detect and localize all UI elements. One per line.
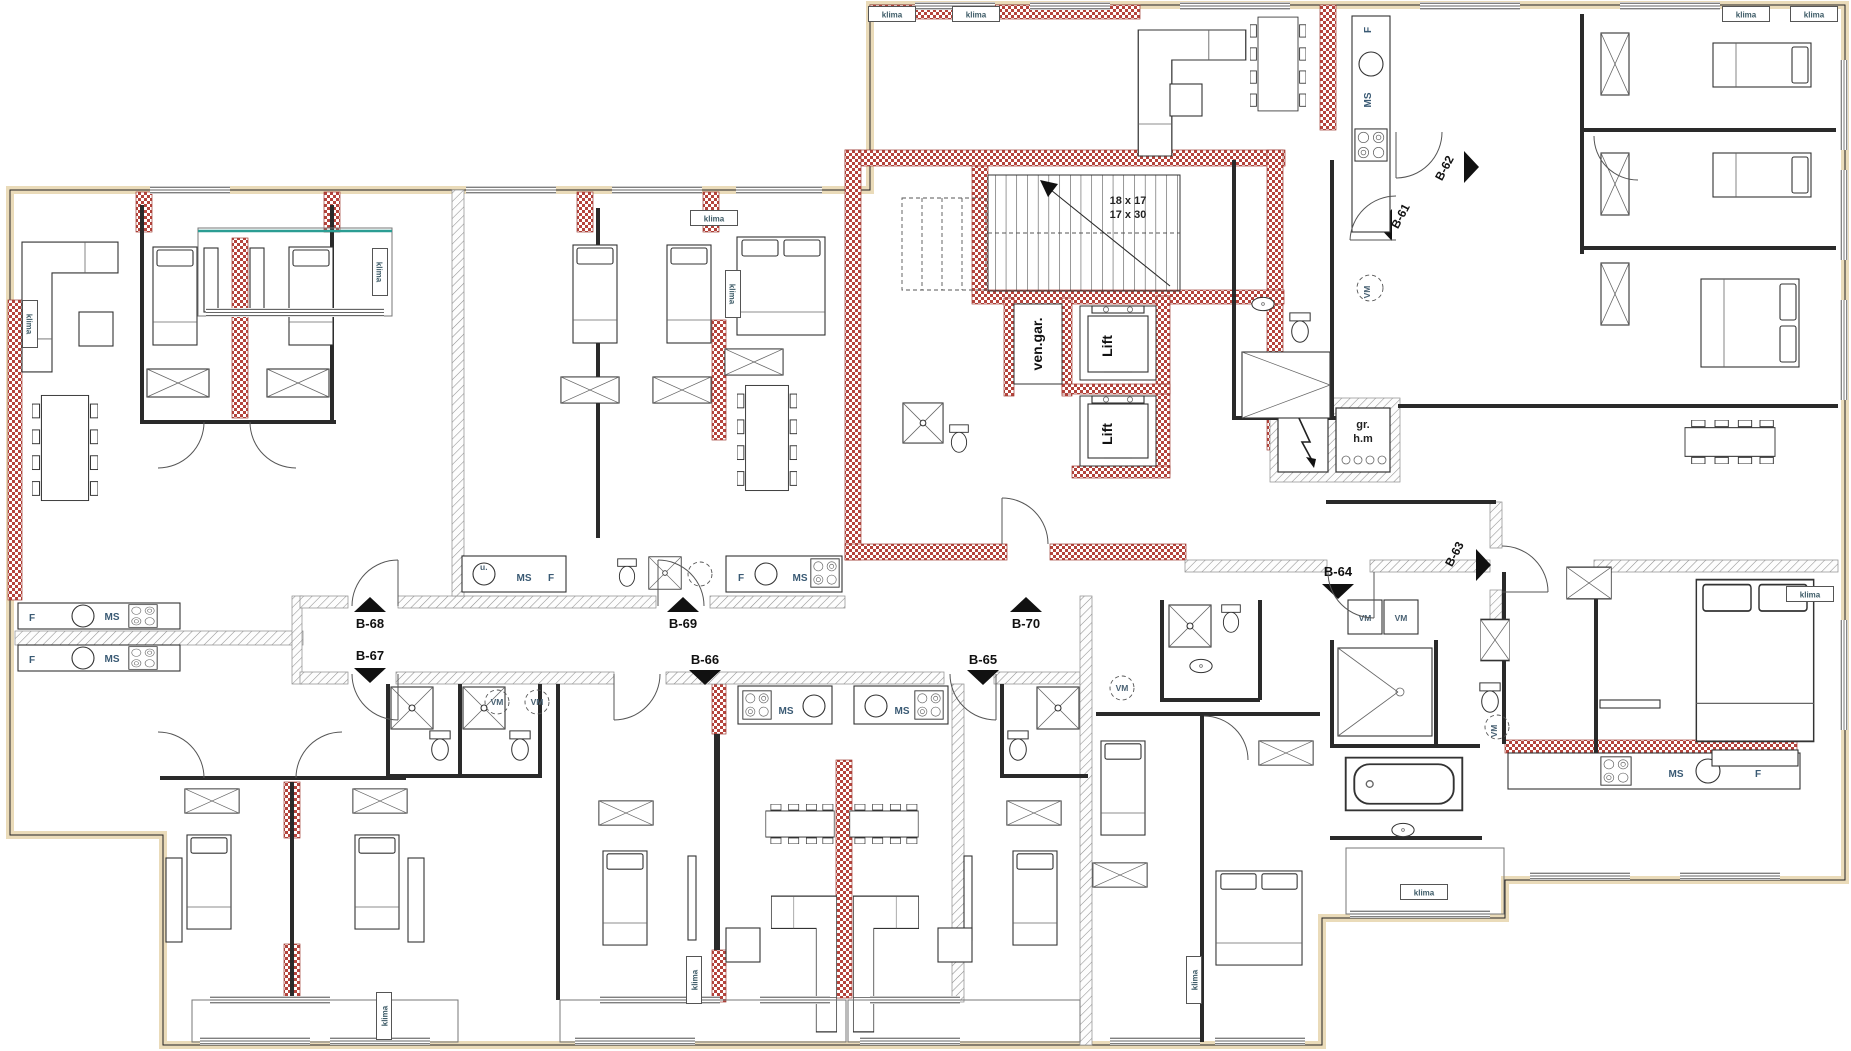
bed-icon [1101,741,1145,835]
window [1840,620,1848,730]
fridge-label: F [1363,27,1374,33]
lift-2-label: Lift [1099,423,1115,445]
unit-label-b65: B-65 [969,652,997,667]
wall-segment [386,684,390,776]
wall-segment [845,544,1007,560]
fridge-label: F [29,613,35,624]
floor-plan-page: klima [0,0,1851,1051]
wall-segment [1398,404,1838,408]
sink-icon [72,605,94,627]
wall-segment [458,684,462,776]
entrance-arrow-b70 [1010,597,1042,612]
wall-segment [292,596,302,684]
wall-segment [1160,600,1164,700]
wall-segment [1004,298,1014,396]
washing-machine-label: VM [1362,286,1372,299]
klima-unit-icon [726,271,741,318]
unit-label-b67: B-67 [356,648,384,663]
toilet-icon [1290,313,1310,342]
bed-icon [1713,153,1811,197]
window [1215,1037,1305,1045]
bed-icon [667,245,711,343]
shower-icon [1037,687,1079,729]
wall-segment [1232,160,1236,420]
bed-icon [1013,851,1057,945]
door-arc [158,732,204,778]
wall-segment [1434,640,1438,748]
wardrobe-icon [353,789,407,813]
dishwasher-label: MS [105,654,120,665]
wall-segment [712,684,726,734]
wall-segment [1160,698,1260,702]
sink-icon [803,695,825,717]
klima-unit-icon [377,993,392,1040]
window [575,1037,695,1045]
bed-icon [355,835,399,929]
window [860,1037,960,1045]
desk [250,248,264,312]
klima-unit-icon [691,211,738,226]
window [1680,872,1780,880]
dishwasher-label: MS [779,706,794,717]
window [466,186,556,194]
wardrobe-icon [1480,619,1509,660]
wardrobe-icon [725,349,783,375]
dining-table-icon [766,804,834,844]
wardrobe-icon [1259,741,1313,765]
bed-icon [289,247,333,345]
fridge-label: F [1755,769,1761,780]
tv-panel [964,856,972,940]
window [1180,2,1290,10]
stove-icon [915,691,943,719]
double-bed-icon [1216,871,1302,965]
meter-room-label-1: gr. [1356,419,1369,431]
wall-segment [1326,500,1496,504]
wardrobe-icon [185,789,239,813]
entrance-arrow-b69 [667,597,699,612]
wall-segment [1080,596,1092,1045]
fridge-label: F [29,655,35,666]
lift-machinery-2 [1092,396,1144,403]
toilet-icon [950,425,969,453]
wall-segment [1062,298,1072,396]
wardrobe-icon [267,369,329,397]
shower-icon [391,687,433,729]
column [577,192,593,232]
fridge-label: F [548,573,554,584]
wall-segment [845,150,861,560]
door-arc [158,422,204,468]
wardrobe-icon [1567,567,1612,599]
wall-segment [1330,640,1334,748]
tv-panel [688,856,696,940]
wall-segment [1584,246,1836,250]
basin-icon [1190,659,1212,672]
shower-icon [463,687,505,729]
toilet-icon [430,731,450,760]
window [1030,2,1110,10]
window [1620,2,1720,10]
stair-core: 18 x 17 17 x 30 [902,175,1180,291]
sofa-icon [771,896,836,1032]
door-arc [614,674,660,720]
toilet-icon [1008,731,1028,760]
balcony [1346,848,1504,914]
wall-segment [1000,774,1088,778]
corridor-wall [396,672,614,684]
wall-segment [836,760,852,998]
wall-segment [1580,14,1584,254]
door-arc [1204,716,1248,760]
wall-segment [972,290,1284,304]
sink-icon [72,647,94,669]
coffee-table [938,928,972,962]
window [150,186,230,194]
lift-car-1 [1088,316,1148,372]
corridor-wall [300,672,348,684]
structural-walls [8,5,1797,1002]
dining-table-icon [1685,420,1775,464]
corridor-wall [994,672,1080,684]
toilet-icon [618,559,637,587]
window [736,186,822,194]
dishwasher-label: MS [1669,769,1684,780]
bed-bench [1712,750,1798,766]
coffee-table [79,312,113,346]
walk-in-shower [1338,648,1432,736]
wardrobe-icon [1601,33,1629,95]
wall-segment [140,205,144,423]
bed-icon [153,247,197,345]
desk [408,858,424,942]
window [1840,300,1848,400]
klima-unit-icon [1723,7,1770,22]
corridor-wall [300,596,348,608]
stove-icon [1355,129,1387,161]
bed-icon [573,245,617,343]
klima-unit-icon [687,957,702,1004]
klima-unit-icon [869,7,916,22]
shower-icon [903,403,943,443]
unit-label-b70: B-70 [1012,616,1040,631]
stove-icon [811,559,839,587]
washing-machine-label: VM [1395,613,1408,623]
dishwasher-label: MS [517,573,532,584]
sink-icon [865,695,887,717]
unit-label-b68: B-68 [356,616,384,631]
door-arc [250,422,296,468]
entrance-arrow-b63 [1476,549,1491,581]
dining-table-icon [850,804,918,844]
wall-segment [1584,128,1836,132]
corridor-wall [1370,560,1490,572]
entrance-arrow-b67 [354,668,386,683]
bed-icon [187,835,231,929]
klima-unit-icon [373,249,388,296]
tv-panel [1600,700,1660,708]
washing-machine-label: VM [1116,683,1129,693]
sofa-icon [853,896,918,1032]
wardrobe-icon [1007,801,1061,825]
window [210,996,330,1004]
window [1840,170,1848,260]
wardrobe-icon [147,369,209,397]
klima-unit-icon [1787,587,1834,602]
wall-segment [845,150,1285,166]
desk [204,248,218,312]
window [612,186,702,194]
bed-icon [603,851,647,945]
meter-room-label-2: h.m [1353,433,1373,445]
door-arc [352,560,398,606]
stair-dimension-2: 17 x 30 [1110,209,1147,221]
wardrobe-icon [1601,153,1629,215]
wall-segment [1062,384,1170,394]
floor-plan-svg: klima [0,0,1851,1051]
unit-label-b66: B-66 [691,652,719,667]
dining-table-icon [1250,17,1306,111]
dishwasher-label: MS [1363,92,1374,107]
dishwasher-label: MS [105,612,120,623]
wall-segment [1320,5,1336,130]
stove-icon [1601,757,1631,785]
corridor-wall [398,596,656,608]
window [760,996,830,1004]
walk-in-shower [1242,352,1330,418]
sink-icon [1359,52,1383,76]
dishwasher-label: MS [895,706,910,717]
klima-unit-icon [1187,957,1202,1004]
fridge-label: F [738,573,744,584]
wall-segment [452,190,464,596]
dining-table-icon [32,395,98,500]
double-bed-icon [1696,580,1813,742]
wall-segment [1330,160,1334,420]
entrance-arrow-b62 [1464,151,1479,183]
klima-unit-icon [953,7,1000,22]
sink-icon [755,563,777,585]
window [1350,910,1490,918]
toilet-icon [1480,683,1500,712]
corridor-wall [1185,560,1327,572]
window [200,1037,310,1045]
klima-unit-icon [1791,7,1838,22]
wall-segment [1072,466,1170,478]
vent-shaft-label: ven.gar. [1029,318,1045,371]
lift-machinery-1 [1092,306,1144,313]
door-arc [296,732,342,778]
stove-icon [129,605,157,628]
wardrobe-icon [599,801,653,825]
washing-machine-label: VM [491,697,504,707]
wall-segment [458,774,542,778]
shower-icon [649,557,681,589]
door-arc [1002,498,1048,544]
window [206,308,384,317]
sink-u-label: u. [480,562,488,572]
wall-segment [1594,572,1598,762]
entrance-arrow-b68 [354,597,386,612]
wall-segment [160,776,406,780]
balcony [560,1000,846,1042]
unit-label-b62: B-62 [1432,153,1457,183]
wall-segment [1594,560,1838,572]
lift-1-label: Lift [1099,335,1115,357]
wall-segment [1330,744,1480,748]
toilet-icon [1222,605,1241,633]
door-arc [1502,546,1548,592]
stair-dimension-1: 18 x 17 [1110,195,1147,207]
stove-icon [743,691,771,719]
basin-icon [1392,823,1414,836]
bathtub-icon [1346,758,1463,811]
washing-machine-label: VM [1489,725,1499,738]
dishwasher-label: MS [793,573,808,584]
stove-icon [129,647,157,670]
wall-segment [386,774,464,778]
toilet-icon [510,731,530,760]
wall-segment [1258,600,1262,700]
entrance-arrow-b64 [1322,584,1354,599]
unit-label-b69: B-69 [669,616,697,631]
coffee-table [726,928,760,962]
klima-unit-icon [1401,885,1448,900]
coffee-table [1170,84,1202,116]
wall-segment [712,320,726,440]
balcony [848,1000,1080,1042]
window [1110,1037,1200,1045]
basin-icon [1252,297,1274,310]
kitchen-counter [1352,16,1390,232]
dining-table-icon [737,385,797,490]
balcony [192,1000,458,1042]
wall-segment [290,782,294,1002]
double-bed-icon [737,237,825,335]
wall-segment [556,684,560,1000]
klima-unit-icon [23,301,38,348]
window [870,996,960,1004]
bed-icon [1713,43,1811,87]
wardrobe-icon [653,377,711,403]
shower-icon [1169,605,1211,647]
corridor-wall [710,596,845,608]
wall-segment [140,420,336,424]
wall-segment [714,734,720,950]
corridor-wall [1490,502,1502,548]
wardrobe-icon [1093,863,1147,887]
wall-segment [1000,684,1004,776]
wall-segment [8,300,22,600]
double-bed-icon [1701,279,1799,367]
wardrobe-icon [1601,263,1629,325]
wall-segment [15,631,303,645]
desk [166,858,182,942]
wall-segment [712,950,726,1002]
window [1840,60,1848,150]
lift-car-2 [1088,404,1148,458]
window [1420,2,1520,10]
wardrobe-icon [561,377,619,403]
wall-segment [1096,712,1320,716]
washing-machine-label: VM [531,697,544,707]
wall-segment [232,238,248,418]
window [1530,872,1630,880]
wall-segment [1050,544,1186,560]
